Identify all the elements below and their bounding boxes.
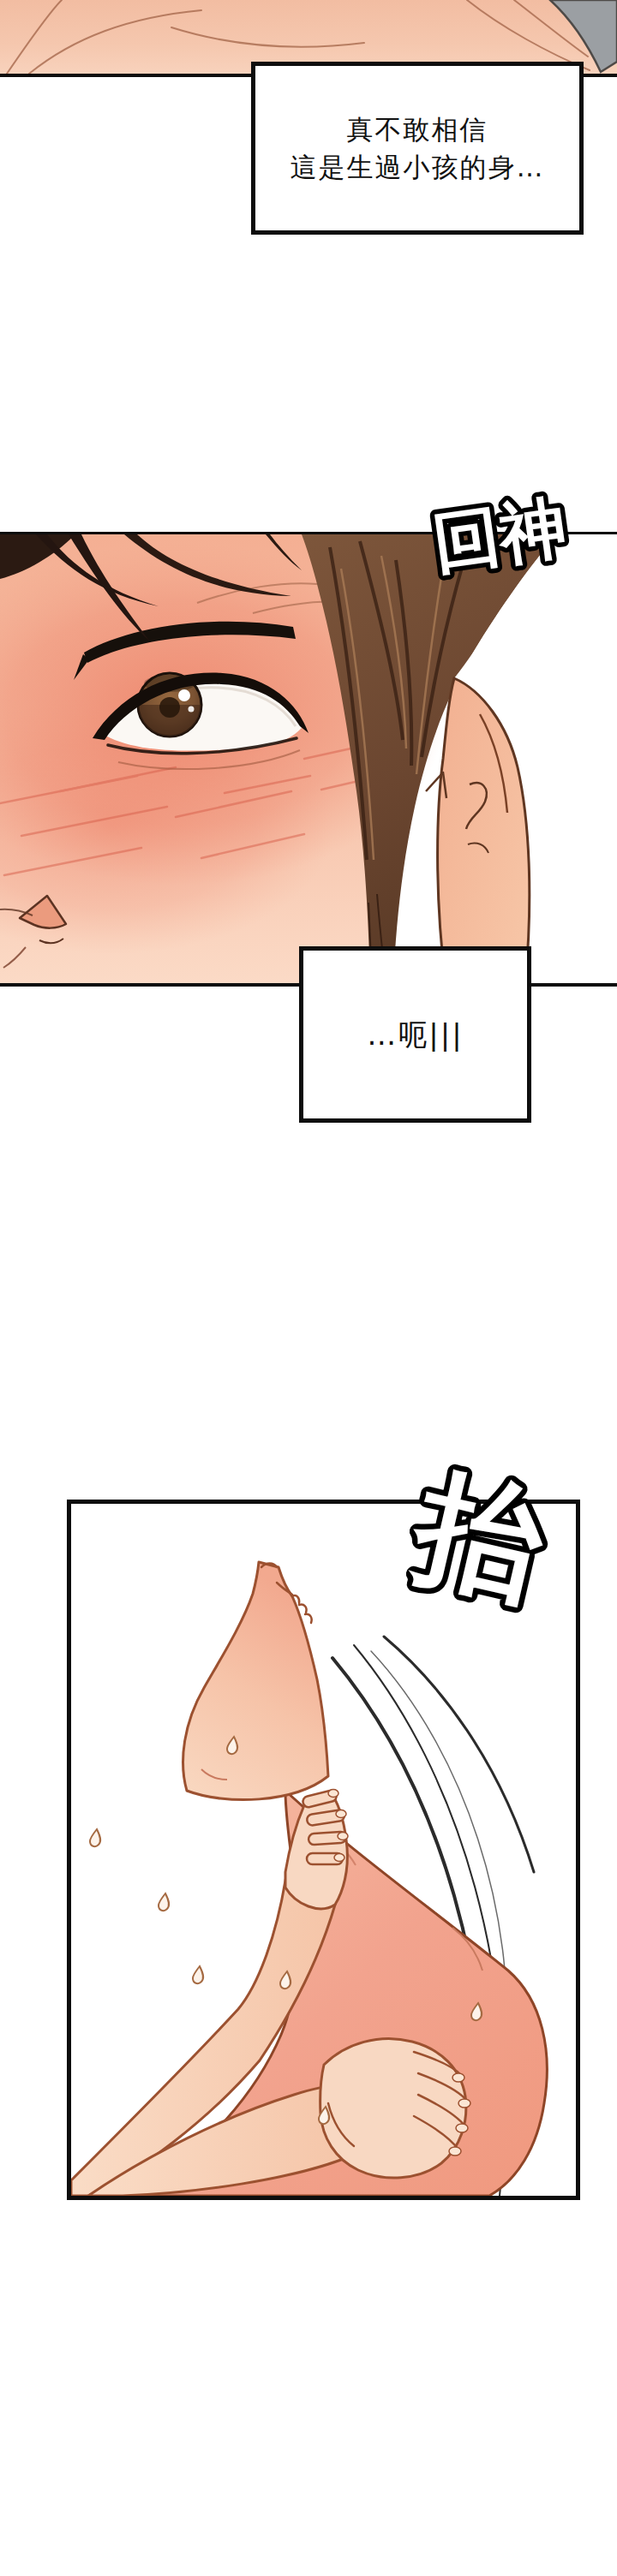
speech-box-1-line-2: 這是生過小孩的身…	[291, 148, 545, 186]
panel-blushing-face	[0, 532, 617, 987]
eye-highlight-large	[178, 689, 190, 701]
panel-lifted-leg	[67, 1500, 580, 2200]
comic-page: 真不敢相信 這是生過小孩的身…	[0, 0, 617, 2576]
panel3-art	[71, 1504, 576, 2196]
speech-box-1: 真不敢相信 這是生過小孩的身…	[251, 62, 584, 235]
eye-highlight-small	[189, 707, 195, 713]
pupil	[159, 697, 180, 718]
speech-box-2-line-1: …呃|||	[367, 1016, 463, 1053]
speech-box-1-line-1: 真不敢相信	[347, 110, 488, 148]
speech-box-2: …呃|||	[299, 946, 531, 1123]
panel2-art	[0, 534, 617, 983]
